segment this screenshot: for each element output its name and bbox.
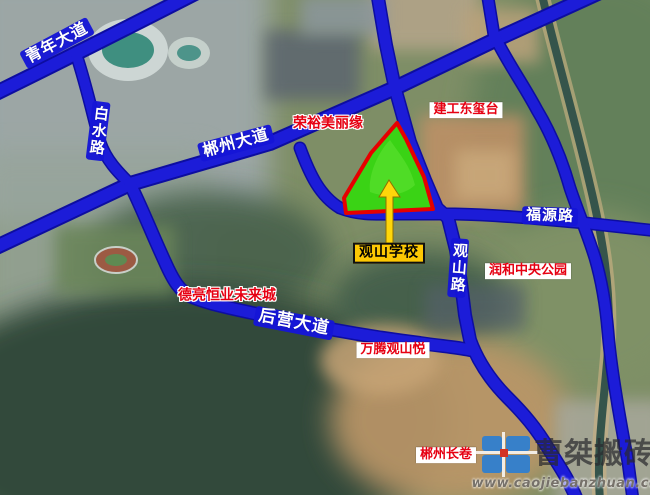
logo-block <box>506 455 530 473</box>
place-label-changjuan: 郴州长卷 <box>416 447 476 463</box>
road-label-guanshan: 观山路 <box>447 238 469 298</box>
logo-block <box>482 455 502 473</box>
logo-block <box>482 436 502 451</box>
satellite-terrain <box>0 0 650 495</box>
road-label-fuyuan: 福源路 <box>522 206 579 226</box>
school-callout-label: 观山学校 <box>353 243 425 264</box>
logo-block <box>506 436 530 451</box>
satellite-map: 青年大道 白水路 郴州大道 福源路 观山路 后营大道 荣裕美丽缘 德亮恒业未来城… <box>0 0 650 495</box>
place-label-runhe: 润和中央公园 <box>485 263 571 279</box>
watermark-logo-icon <box>482 436 530 473</box>
watermark-brand-text: 曹桀搬砖 <box>534 438 650 468</box>
place-label-rongyu: 荣裕美丽缘 <box>293 117 363 132</box>
place-label-jiangong: 建工东玺台 <box>429 102 502 118</box>
place-label-wanteng: 万腾观山悦 <box>356 342 429 358</box>
place-label-deliang: 德亮恒业未来城 <box>178 289 276 304</box>
watermark-url-text: www.caojiebanzhuan.com <box>472 477 650 491</box>
logo-red-dot <box>500 449 508 457</box>
